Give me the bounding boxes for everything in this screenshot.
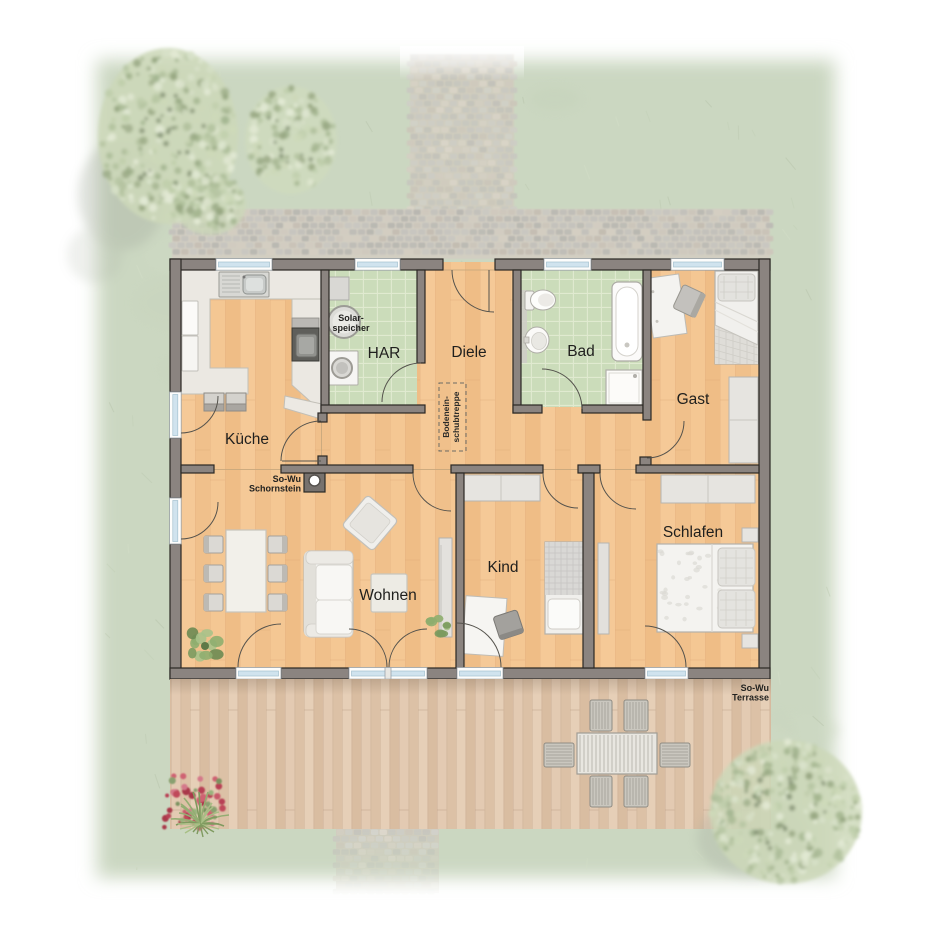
svg-text:Küche: Küche: [225, 431, 269, 448]
svg-text:Terrasse: Terrasse: [732, 693, 769, 703]
svg-text:Schlafen: Schlafen: [663, 524, 723, 541]
svg-text:So-Wu: So-Wu: [273, 474, 301, 484]
svg-text:So-Wu: So-Wu: [741, 683, 769, 693]
svg-text:Bodenein-: Bodenein-: [441, 396, 451, 438]
svg-text:Gast: Gast: [677, 391, 710, 408]
svg-text:Kind: Kind: [487, 559, 518, 576]
svg-text:Diele: Diele: [451, 344, 486, 361]
svg-text:speicher: speicher: [332, 323, 370, 333]
svg-text:Solar-: Solar-: [338, 313, 364, 323]
svg-text:Schornstein: Schornstein: [249, 484, 301, 494]
svg-text:HAR: HAR: [368, 345, 401, 362]
svg-text:Bad: Bad: [567, 343, 595, 360]
svg-text:Wohnen: Wohnen: [359, 587, 416, 604]
svg-text:schubtreppe: schubtreppe: [451, 391, 461, 442]
